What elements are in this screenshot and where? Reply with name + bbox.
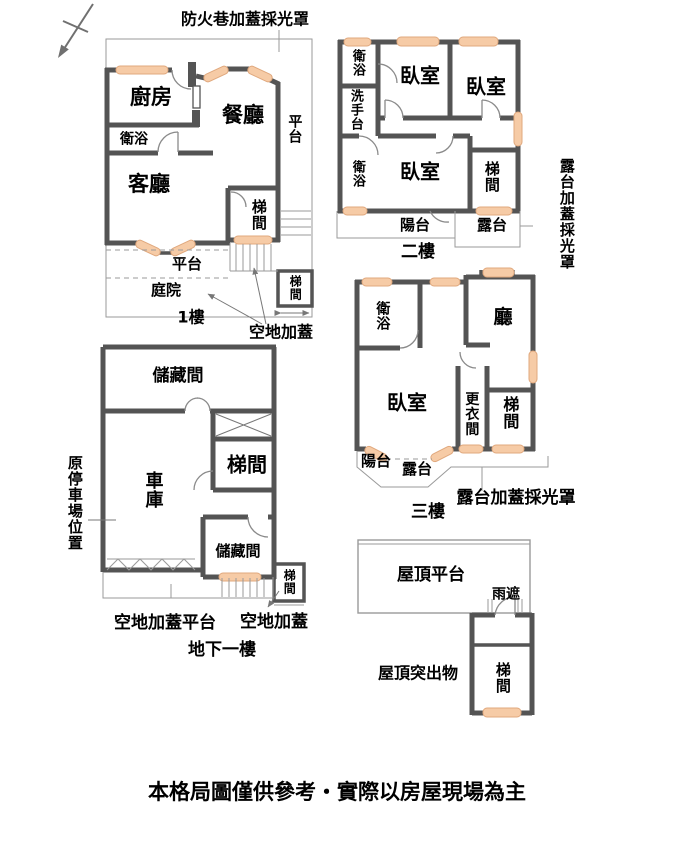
floor3-closet-label: 更衣間 — [464, 392, 479, 437]
floor3-terrace-label: 露台 — [402, 462, 432, 478]
basement-platform-note: 空地加蓋平台 — [114, 615, 216, 633]
floor1-dining-label: 餐廳 — [222, 104, 264, 126]
floor3-bedroom-label: 臥室 — [387, 393, 427, 414]
floor1-platform-bottom-label: 平台 — [172, 257, 202, 273]
north-arrow-icon — [58, 4, 93, 58]
floorplan-drawing — [0, 0, 680, 857]
roof-rain-cover-label: 雨遮 — [492, 588, 520, 603]
roof-stair-label: 梯間 — [494, 662, 510, 694]
basement-side-note: 原停車場位置 — [66, 455, 82, 551]
basement-storage-br-label: 儲藏間 — [215, 544, 260, 560]
floor3-hall-label: 廳 — [493, 308, 512, 328]
floor2-balcony-label: 陽台 — [400, 218, 430, 234]
basement-covered-note: 空地加蓋 — [240, 614, 308, 632]
roof-platform-label: 屋頂平台 — [397, 567, 465, 585]
floorplan-page: 防火巷加蓋採光罩 廚房 餐廳 衛浴 客廳 梯間 平台 平台 庭院 1樓 空地加蓋… — [0, 0, 680, 857]
floor2-washbasin-label: 洗手台 — [348, 89, 362, 131]
basement-storage-top-label: 儲藏間 — [153, 368, 204, 386]
floor2-bedroom2-label: 臥室 — [466, 77, 506, 98]
disclaimer-text: 本格局圖僅供參考・實際以房屋現場為主 — [148, 781, 526, 803]
floor2-bath-top-label: 衛浴 — [350, 49, 364, 77]
fire-lane-note: 防火巷加蓋採光罩 — [181, 12, 309, 29]
floor1-bath-label: 衛浴 — [120, 133, 148, 148]
floor1-courtyard-label: 庭院 — [151, 283, 181, 299]
floor1-stair-label: 梯間 — [250, 199, 266, 231]
floor2-bedroom1-label: 臥室 — [400, 66, 440, 87]
floor2-stair-label: 梯間 — [483, 161, 499, 193]
basement-garage-label: 車庫 — [143, 471, 162, 509]
floor2-terrace-label: 露台 — [477, 218, 507, 234]
floor1-name-label: 1樓 — [177, 310, 204, 327]
floor1-covered-note: 空地加蓋 — [249, 325, 313, 342]
floor1-stair2-label: 梯間 — [289, 275, 302, 301]
floor2-bedroom3-label: 臥室 — [400, 162, 440, 183]
floor2-bath-bottom-label: 衛浴 — [350, 160, 364, 188]
floor3-stair-label: 梯間 — [501, 396, 518, 430]
basement-stair-label: 梯間 — [227, 455, 267, 476]
floor2-side-note: 露台加蓋採光罩 — [558, 158, 574, 270]
floor3-name-label: 三樓 — [411, 504, 445, 522]
floor3-balcony-label: 陽台 — [361, 454, 391, 470]
roof-protrusion-label: 屋頂突出物 — [378, 666, 458, 683]
floor2-name-label: 二樓 — [401, 244, 435, 262]
floor1-living-label: 客廳 — [128, 173, 170, 195]
floor3-terrace-note: 露台加蓋採光罩 — [457, 490, 576, 508]
floor1-kitchen-label: 廚房 — [130, 86, 172, 108]
floor3-bath-label: 衛浴 — [375, 301, 390, 331]
floor1-platform-right-label: 平台 — [287, 114, 302, 144]
basement-stair2-label: 梯間 — [283, 569, 296, 595]
basement-name-label: 地下一樓 — [188, 642, 256, 660]
